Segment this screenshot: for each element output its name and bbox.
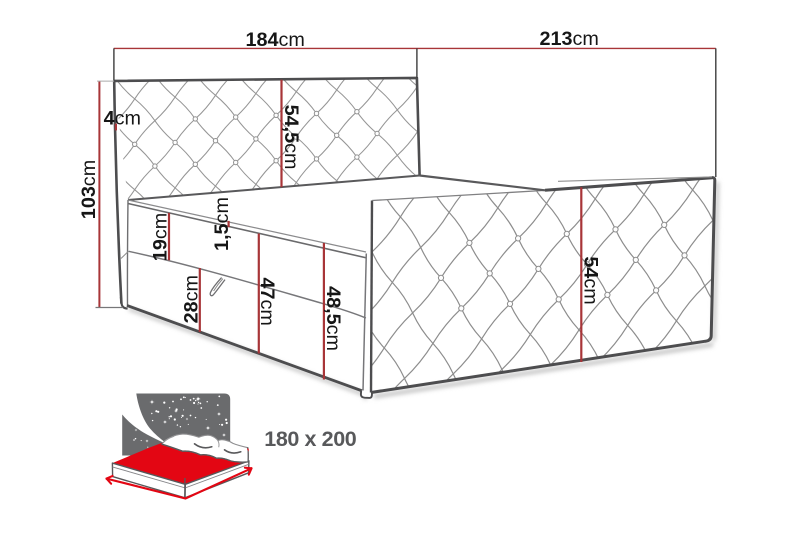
svg-text:47cm: 47cm [256,278,278,326]
svg-text:184cm: 184cm [246,29,305,51]
svg-text:48,5cm: 48,5cm [322,286,344,351]
svg-text:180 x 200: 180 x 200 [264,427,356,451]
svg-text:54cm: 54cm [580,256,602,304]
svg-text:4cm: 4cm [104,107,141,129]
svg-text:28cm: 28cm [181,275,203,323]
svg-text:54,5cm: 54,5cm [280,105,302,170]
svg-text:1,5cm: 1,5cm [211,197,233,251]
svg-text:19cm: 19cm [150,213,172,261]
svg-text:103cm: 103cm [78,160,100,219]
svg-text:213cm: 213cm [540,28,599,50]
